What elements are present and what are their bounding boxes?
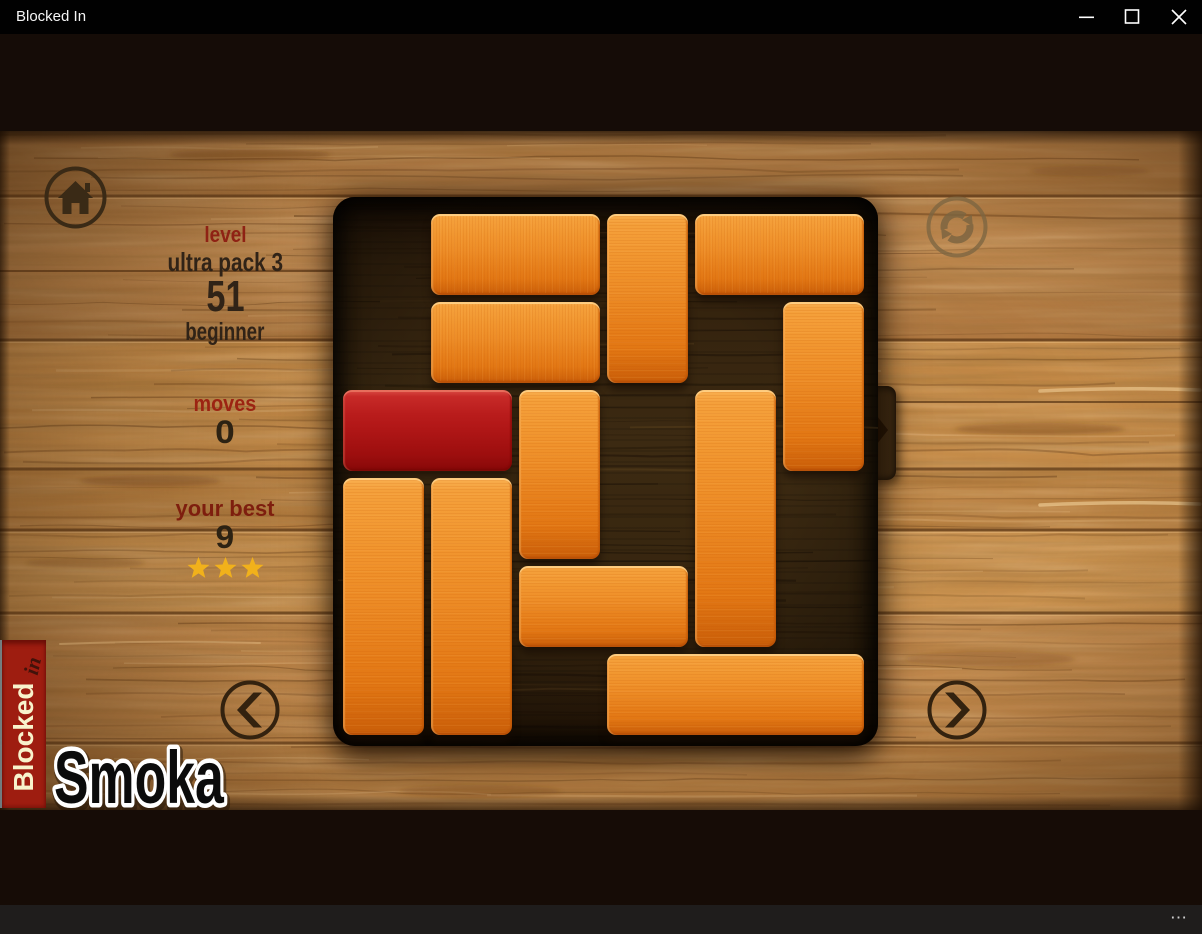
svg-text:Smoka: Smoka [54,736,224,819]
